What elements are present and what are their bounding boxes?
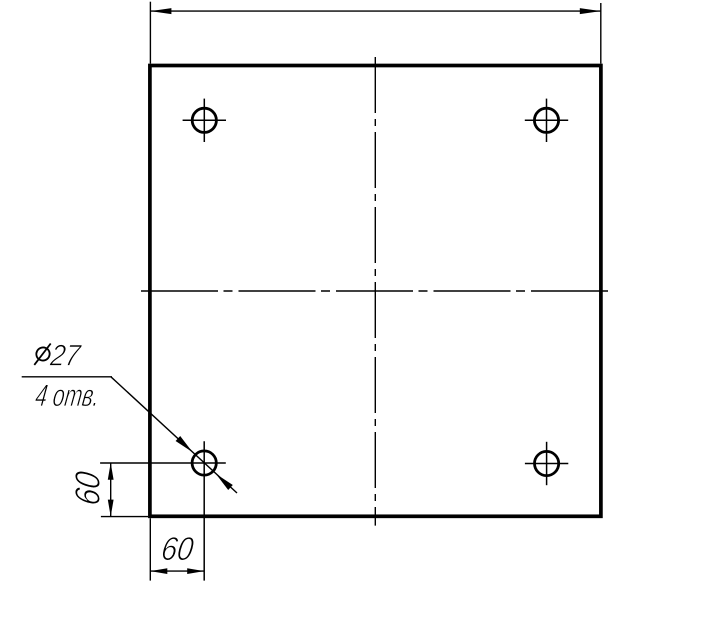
svg-text:60: 60 xyxy=(159,530,196,567)
svg-text:27: 27 xyxy=(48,338,84,372)
svg-text:60: 60 xyxy=(67,469,107,508)
svg-text:4 отв.: 4 отв. xyxy=(33,378,102,413)
